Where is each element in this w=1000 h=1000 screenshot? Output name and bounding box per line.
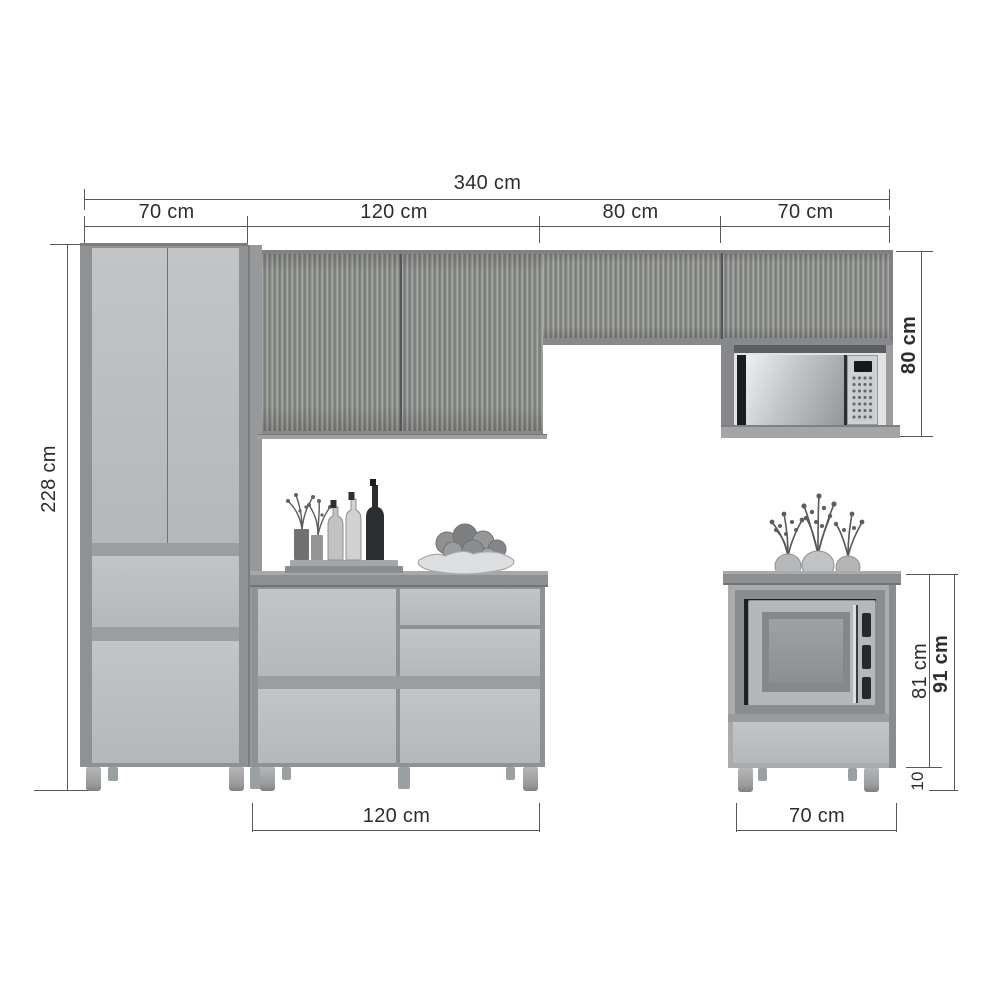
microwave-lower-button bbox=[862, 613, 871, 637]
bottle-wine bbox=[366, 485, 384, 560]
vase-light bbox=[311, 535, 323, 560]
base-cabinet-door-bottom-left bbox=[258, 689, 396, 763]
right-cabinet-top bbox=[723, 571, 901, 585]
bottle-light-2 bbox=[346, 499, 361, 560]
plant-stems bbox=[772, 496, 862, 556]
dim-label-segment-3: 80 cm bbox=[540, 201, 721, 223]
sprig-dots bbox=[286, 493, 332, 517]
dim-label-right-total-height: 91 cm bbox=[930, 629, 952, 699]
dim-label-total-width: 340 cm bbox=[85, 172, 890, 194]
microwave-upper-buttons bbox=[852, 376, 874, 421]
dim-tick bbox=[929, 790, 958, 791]
base-cabinet-drawer-2 bbox=[400, 629, 540, 676]
dim-label-right-body-height: 81 cm bbox=[909, 636, 931, 706]
microwave-lower-button bbox=[862, 677, 871, 699]
base-cabinet-rail bbox=[258, 676, 540, 689]
dim-label-segment-1: 70 cm bbox=[85, 201, 248, 223]
upper-cabinet-80-70 bbox=[543, 250, 893, 345]
cabinet-leg bbox=[523, 767, 538, 791]
cabinet-leg bbox=[848, 768, 857, 781]
diagram-canvas: 340 cm 70 cm 120 cm 80 cm 70 cm 228 cm 8… bbox=[0, 0, 1000, 1000]
sprig-lines bbox=[288, 495, 330, 535]
dim-line-upper-height bbox=[921, 252, 922, 437]
base-cabinet-drawer-1 bbox=[400, 589, 540, 625]
right-cabinet-drawer bbox=[733, 722, 889, 763]
cabinet-leg bbox=[758, 768, 767, 781]
cabinet-leg bbox=[864, 768, 879, 792]
dim-label-segment-2: 120 cm bbox=[248, 201, 540, 223]
niche-top-shadow bbox=[734, 345, 886, 353]
dim-line-segments bbox=[85, 226, 890, 227]
dim-line-base-width bbox=[253, 830, 540, 831]
microwave-upper-door-edge bbox=[737, 355, 746, 425]
dim-label-segment-4: 70 cm bbox=[721, 201, 890, 223]
bottle-light-1 bbox=[328, 507, 343, 560]
microwave-lower-divider-shadow bbox=[856, 605, 858, 703]
dim-label-tall-height: 228 cm bbox=[38, 439, 60, 519]
dim-tick bbox=[34, 790, 88, 791]
tall-cabinet-rail bbox=[92, 627, 239, 641]
microwave-upper-door bbox=[746, 355, 847, 425]
right-cabinet-rail bbox=[728, 714, 889, 722]
decor-bottle-tray bbox=[280, 463, 410, 575]
dim-line-tall-height bbox=[67, 245, 68, 791]
microwave-upper-panel bbox=[847, 355, 878, 425]
dim-label-base-width: 120 cm bbox=[253, 805, 540, 827]
dim-label-right-width: 70 cm bbox=[737, 805, 897, 827]
upper-cabinet-120 bbox=[262, 250, 543, 438]
tall-cabinet-door-right bbox=[168, 248, 239, 543]
dim-tick bbox=[896, 436, 933, 437]
upper-cabinet-door-divider bbox=[721, 253, 723, 339]
base-cabinet-door-bottom-right bbox=[400, 689, 540, 763]
microwave-upper-display bbox=[854, 361, 872, 372]
microwave-lower bbox=[748, 600, 876, 706]
tall-cabinet-door-left bbox=[92, 248, 168, 543]
cabinet-leg bbox=[282, 767, 291, 780]
niche-shelf bbox=[721, 425, 900, 438]
cabinet-leg bbox=[86, 767, 101, 791]
cabinet-leg bbox=[108, 767, 118, 781]
dim-label-leg-height: 10 bbox=[907, 761, 929, 801]
dim-line-right-width bbox=[737, 830, 897, 831]
decor-potted-plants bbox=[756, 486, 878, 582]
upper-cabinet-door-divider bbox=[400, 254, 402, 431]
cabinet-leg bbox=[398, 767, 410, 789]
dim-label-upper-height: 80 cm bbox=[898, 310, 920, 380]
tall-cabinet-drawer-2 bbox=[92, 641, 239, 763]
dim-tick bbox=[906, 574, 958, 575]
cabinet-leg bbox=[738, 768, 753, 792]
bowl bbox=[418, 551, 514, 574]
cabinet-leg bbox=[506, 767, 515, 780]
vase-dark bbox=[294, 529, 309, 560]
upper-cabinet-bottom-lip bbox=[258, 434, 547, 439]
cabinet-leg bbox=[229, 767, 244, 791]
tall-cabinet-drawer-1 bbox=[92, 556, 239, 627]
dim-tick bbox=[896, 251, 933, 252]
dim-line-total-width bbox=[85, 199, 890, 200]
dim-line-right-total-height bbox=[954, 575, 955, 791]
cabinet-leg bbox=[260, 767, 275, 791]
microwave-lower-button bbox=[862, 645, 871, 669]
decor-fruit-bowl bbox=[413, 518, 521, 580]
base-cabinet-door-left bbox=[258, 589, 396, 676]
microwave-lower-window bbox=[769, 619, 843, 683]
tall-cabinet-rail bbox=[92, 543, 239, 556]
